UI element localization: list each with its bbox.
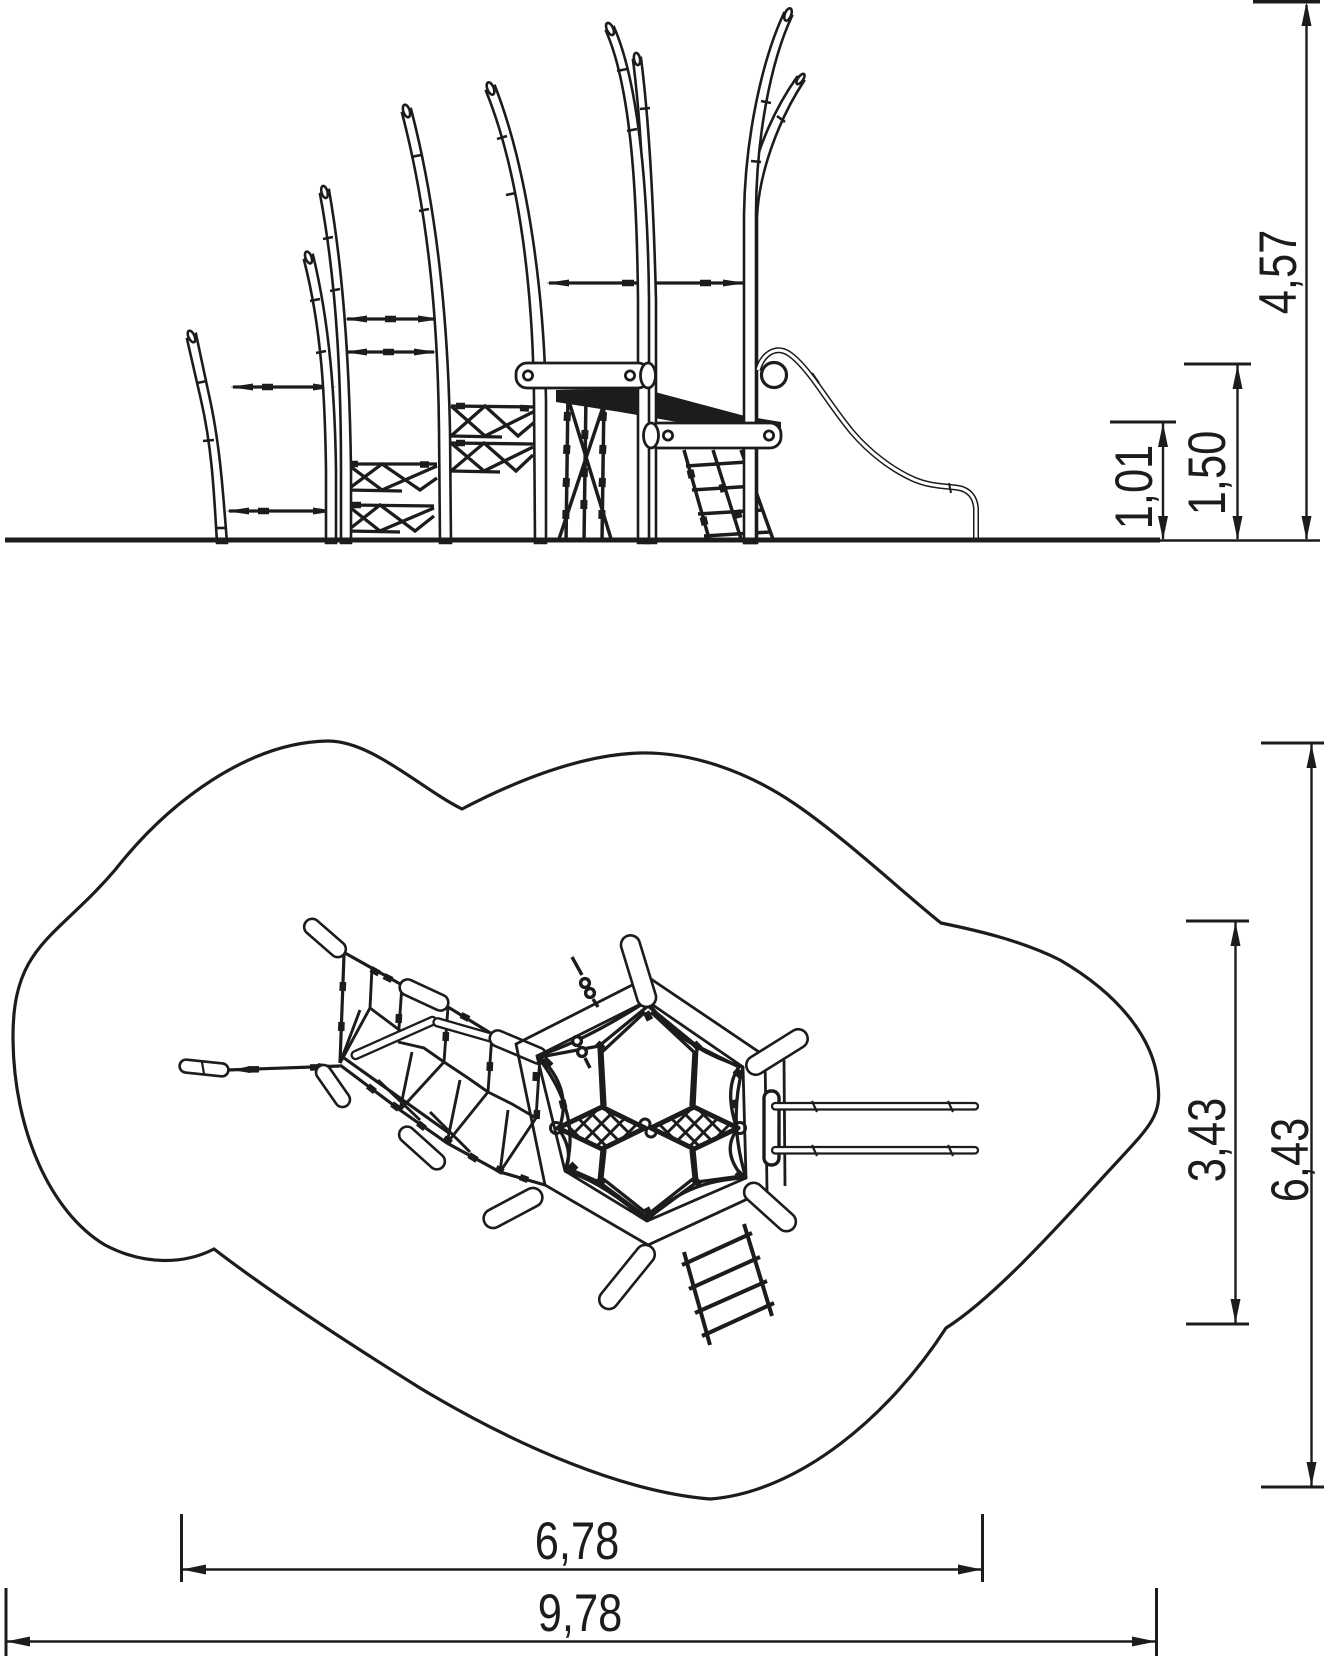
svg-text:9,78: 9,78: [538, 1584, 623, 1643]
svg-text:1,01: 1,01: [1105, 445, 1164, 530]
svg-text:6,43: 6,43: [1261, 1118, 1320, 1203]
svg-text:3,43: 3,43: [1178, 1098, 1237, 1183]
svg-text:6,78: 6,78: [535, 1512, 620, 1571]
svg-text:4,57: 4,57: [1249, 230, 1308, 315]
svg-text:1,50: 1,50: [1178, 431, 1237, 516]
